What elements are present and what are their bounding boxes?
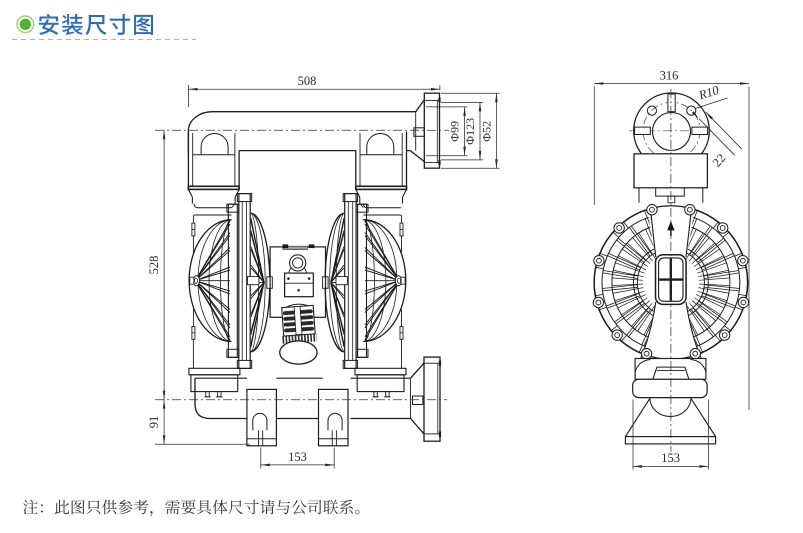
- svg-text:22: 22: [710, 151, 729, 170]
- svg-text:508: 508: [298, 74, 317, 88]
- svg-text:Φ52: Φ52: [479, 121, 493, 142]
- svg-text:91: 91: [147, 416, 161, 429]
- svg-text:153: 153: [288, 450, 307, 464]
- svg-text:316: 316: [660, 69, 679, 83]
- svg-text:Φ123: Φ123: [463, 118, 477, 145]
- svg-text:Φ99: Φ99: [447, 121, 461, 142]
- svg-text:528: 528: [147, 256, 161, 275]
- svg-text:R10: R10: [696, 83, 721, 103]
- svg-text:153: 153: [661, 451, 680, 465]
